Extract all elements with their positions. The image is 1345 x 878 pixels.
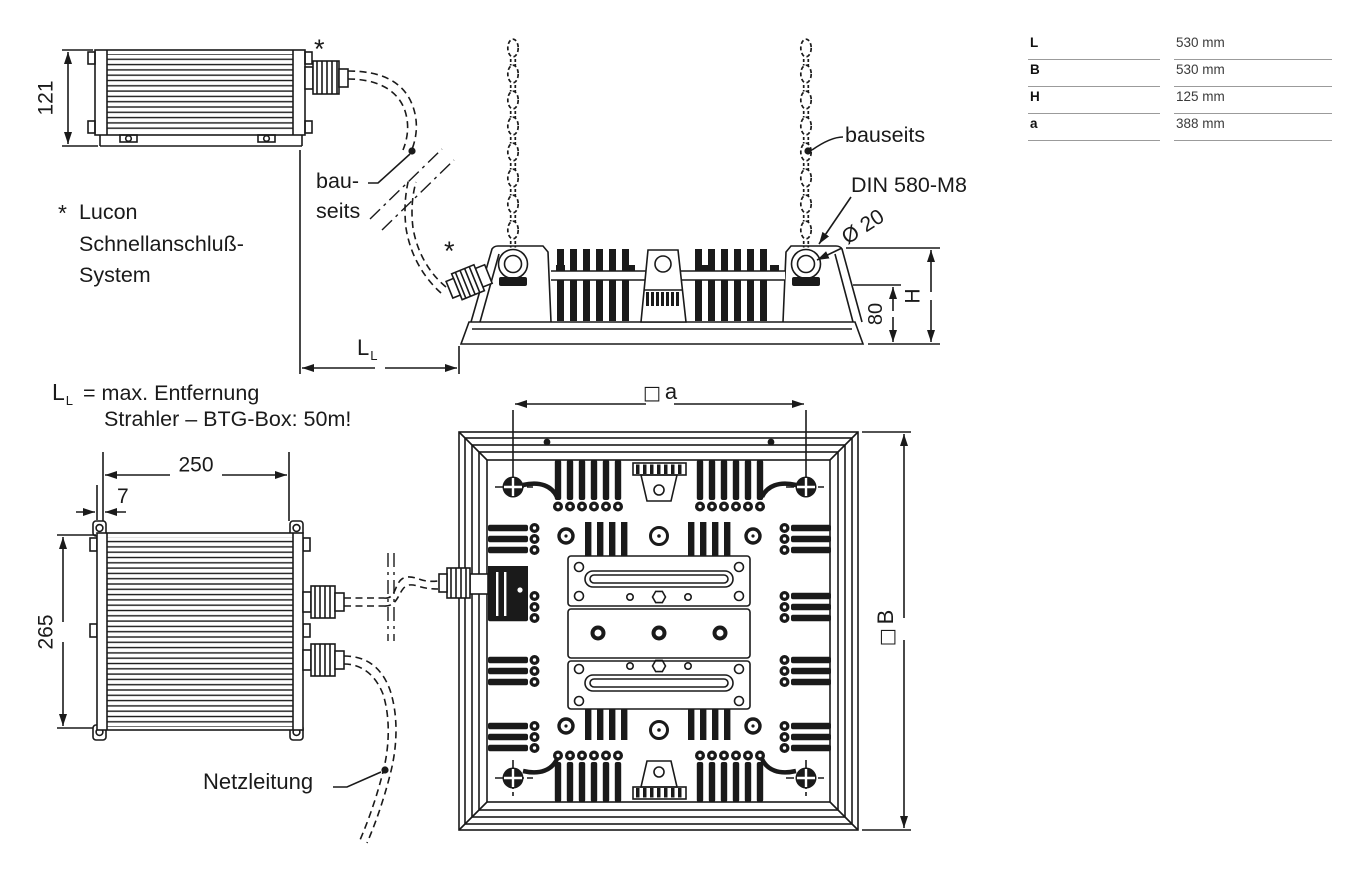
btg-box-side-view [88, 50, 348, 146]
cable-note-line1: LL = max. Entfernung [52, 381, 259, 405]
btg-box-front-view [90, 521, 344, 740]
din-580-m8-label: DIN 580-M8 [851, 175, 967, 197]
lucon-line2: Schnellanschluß- [79, 234, 244, 256]
luminaire-side-view [444, 246, 863, 344]
square-symbol: □ [876, 628, 898, 646]
table-row-label: L [1028, 33, 1160, 60]
table-row-value: 388 mm [1174, 114, 1332, 141]
lucon-line1: Lucon [79, 200, 138, 224]
dimension-table: L 530 mm B 530 mm H 125 mm a 388 mm [1028, 33, 1332, 141]
table-row-label: B [1028, 60, 1160, 87]
dim-7-label: 7 [117, 486, 129, 507]
luminaire-quick-connector [444, 261, 493, 303]
bauseits-right-leader [812, 137, 843, 150]
bauseits-left-label-line2: seits [316, 201, 360, 223]
dim-h-label: H [903, 288, 924, 303]
luminaire-top-view [439, 432, 858, 830]
mains-cable [344, 656, 396, 843]
dim-250-label: 250 [178, 455, 213, 476]
box-gland-1 [303, 586, 344, 618]
square-symbol: □ [643, 382, 661, 404]
eyebolt-right [792, 250, 821, 287]
top-view-mounting-plates [568, 556, 750, 709]
technical-drawing-page: 121 * * Lucon Schnellanschluß- System ba… [0, 0, 1345, 878]
table-row: L 530 mm [1028, 33, 1332, 60]
dim-square-a-label: □a [643, 381, 677, 403]
box-gland-2 [303, 644, 344, 676]
cable-note-line2: Strahler – BTG-Box: 50m! [104, 409, 351, 431]
bauseits-left-leader [368, 154, 410, 183]
cable-break-marks [370, 149, 454, 230]
eyebolt-left [499, 250, 528, 287]
table-row-value: 530 mm [1174, 60, 1332, 87]
top-view-connector [439, 566, 528, 620]
netzleitung-label: Netzleitung [203, 771, 313, 793]
bauseits-left-label-line1: bau- [316, 171, 359, 193]
box-connector-asterisk: * [314, 36, 325, 63]
table-row-value: 530 mm [1174, 33, 1332, 60]
bauseits-right-label: bauseits [845, 125, 925, 147]
dim-265-label: 265 [36, 614, 57, 649]
netzleitung-leader [333, 772, 381, 787]
luminaire-connector-asterisk: * [444, 238, 455, 265]
suspension-chain-right [801, 39, 811, 247]
remote-cable [348, 71, 446, 293]
dim-ll-label: LL [357, 337, 377, 359]
lucon-note: * Lucon Schnellanschluß- System [58, 202, 244, 286]
dim-80-label: 80 [866, 303, 886, 325]
suspension-chain-left [508, 39, 518, 247]
table-row: H 125 mm [1028, 87, 1332, 114]
dim-square-b-label: □B [875, 610, 897, 647]
netzleitung-dot [381, 766, 388, 773]
control-cable [344, 577, 438, 606]
dim-121-label: 121 [36, 80, 57, 115]
lucon-asterisk: * [58, 200, 67, 226]
bauseits-right-dot [804, 147, 811, 154]
diameter-leader [817, 248, 842, 260]
box-quick-connector [305, 61, 348, 94]
table-row: B 530 mm [1028, 60, 1332, 87]
table-row-value: 125 mm [1174, 87, 1332, 114]
table-row: a 388 mm [1028, 114, 1332, 141]
lucon-line3: System [79, 265, 244, 287]
table-row-label: a [1028, 114, 1160, 141]
table-row-label: H [1028, 87, 1160, 114]
